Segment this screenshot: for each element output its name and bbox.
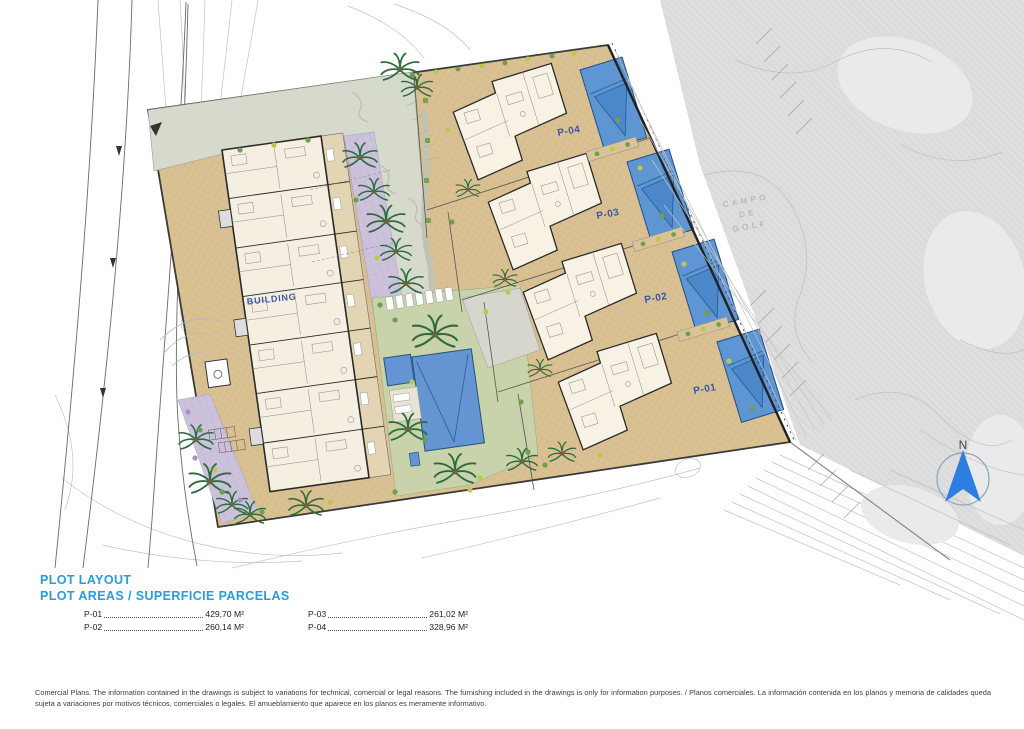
plot-areas-table: P-01 429,70 M² P-02 260,14 M² P-03 261,0… <box>84 609 468 633</box>
plot-area-row-p01: P-01 429,70 M² <box>84 609 244 620</box>
plot-area-row-p02: P-02 260,14 M² <box>84 622 244 633</box>
leader-dots <box>328 630 427 631</box>
road <box>55 0 197 568</box>
disclaimer-en: Comercial Plans. The information contain… <box>35 688 687 697</box>
plot-id: P-04 <box>308 622 326 633</box>
plot-id: P-03 <box>308 609 326 620</box>
plot-layout-page: CAMPO DE GOLF <box>0 0 1024 729</box>
leader-dots <box>104 617 203 618</box>
plot-area-value: 429,70 M² <box>205 609 244 620</box>
plot-area-value: 328,96 M² <box>429 622 468 633</box>
leader-dots <box>328 617 427 618</box>
disclaimer-text: Comercial Plans. The information contain… <box>35 688 991 709</box>
plot-area-value: 261,02 M² <box>429 609 468 620</box>
spa-outbuilding <box>205 359 230 388</box>
plot-id: P-02 <box>84 622 102 633</box>
plot-layout-title: PLOT LAYOUT <box>40 573 131 587</box>
plot-id: P-01 <box>84 609 102 620</box>
plot-area-row-p04: P-04 328,96 M² <box>308 622 468 633</box>
plot-area-row-p03: P-03 261,02 M² <box>308 609 468 620</box>
plot-areas-column-1: P-01 429,70 M² P-02 260,14 M² <box>84 609 244 633</box>
plot-areas-column-2: P-03 261,02 M² P-04 328,96 M² <box>308 609 468 633</box>
plot-areas-subtitle: PLOT AREAS / SUPERFICIE PARCELAS <box>40 589 290 603</box>
north-label: N <box>959 438 968 452</box>
leader-dots <box>104 630 203 631</box>
plot-area-value: 260,14 M² <box>205 622 244 633</box>
